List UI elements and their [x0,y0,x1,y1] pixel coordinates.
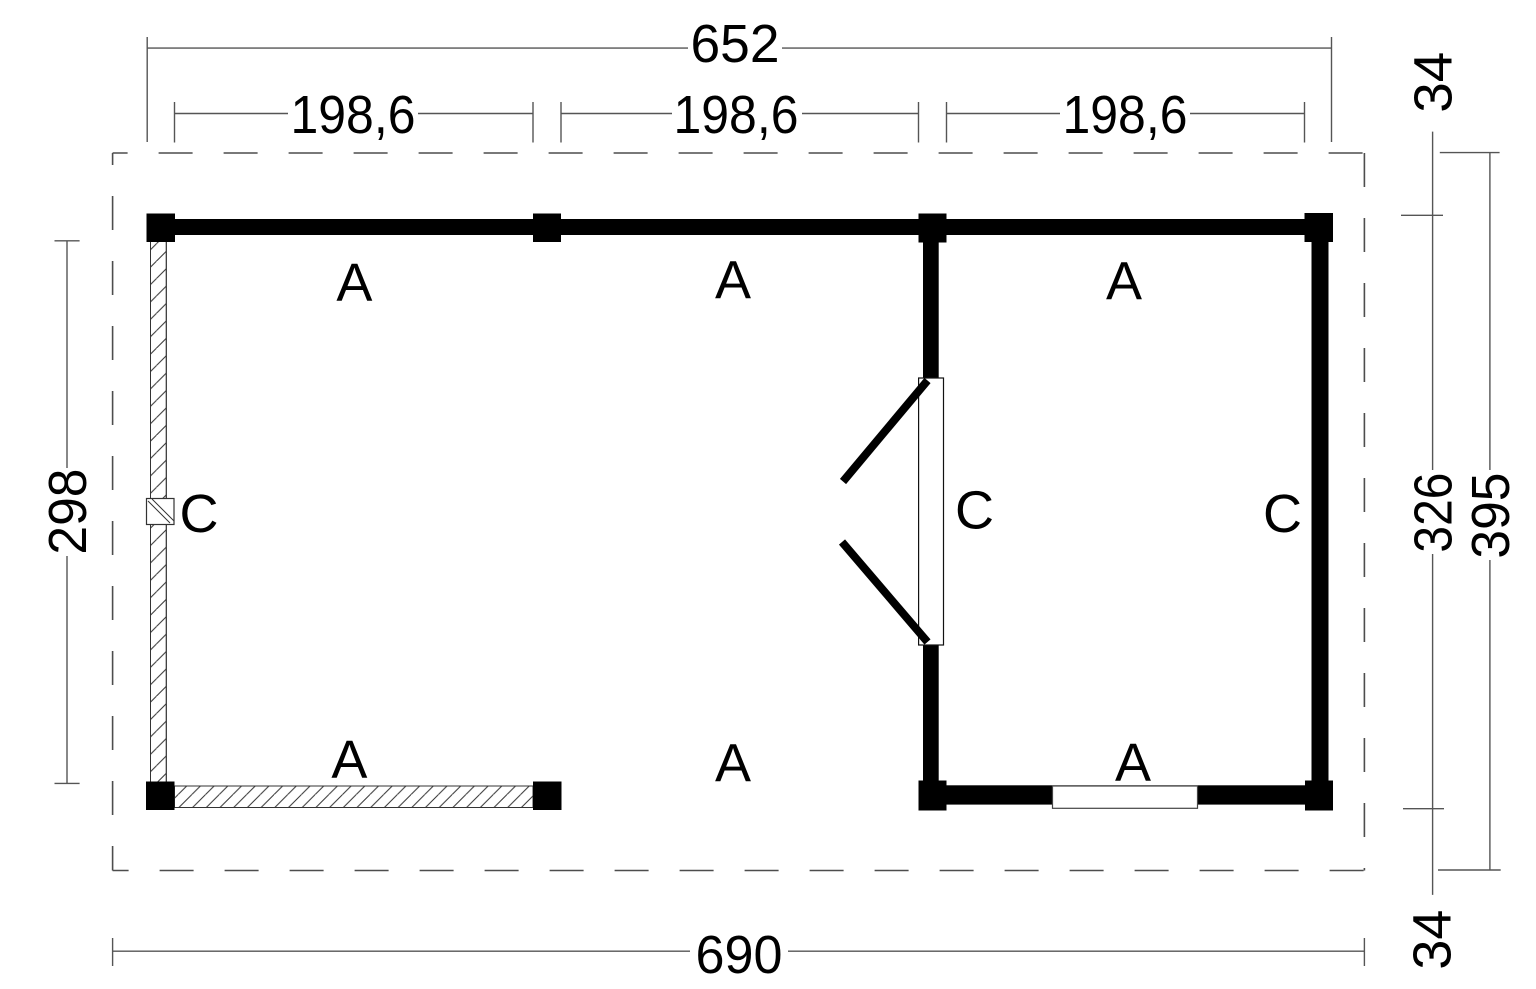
svg-text:A: A [715,250,751,310]
svg-text:198,6: 198,6 [291,85,416,145]
svg-text:652: 652 [691,14,780,74]
svg-text:198,6: 198,6 [674,85,799,145]
svg-text:34: 34 [1403,910,1463,970]
svg-text:198,6: 198,6 [1063,85,1188,145]
svg-text:34: 34 [1404,52,1464,113]
svg-text:A: A [715,734,751,794]
svg-text:A: A [336,253,372,313]
svg-text:298: 298 [38,469,98,555]
svg-text:690: 690 [696,925,783,985]
svg-text:A: A [1115,733,1151,793]
svg-text:395: 395 [1461,473,1521,559]
svg-text:C: C [955,480,994,540]
svg-text:C: C [1263,484,1302,544]
svg-text:C: C [180,484,219,544]
svg-text:326: 326 [1404,473,1464,553]
svg-text:A: A [331,730,367,790]
svg-text:A: A [1106,252,1142,312]
